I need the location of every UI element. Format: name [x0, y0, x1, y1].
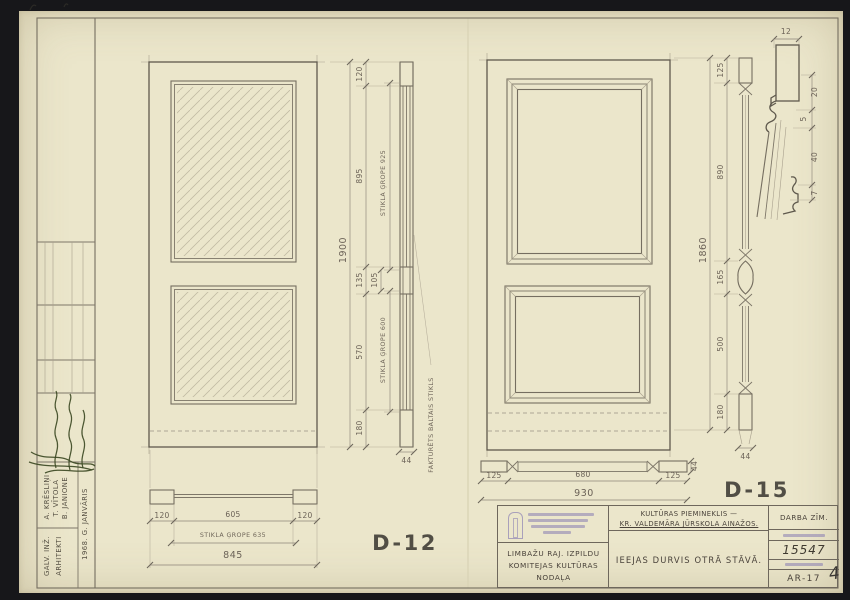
organization-line-3: NODAĻA [498, 572, 609, 584]
dim-d15-panel-width: 680 [575, 470, 590, 479]
dim-d12-stile-right: 120 [297, 511, 312, 520]
d15-vertical-section: 1860 125 890 165 500 180 44 [674, 55, 756, 461]
dim-d15-plan-thickness: 44 [690, 461, 699, 471]
moulding-detail: 12 20 5 40 7 [757, 27, 819, 220]
dim-d12-bottom-rail: 180 [355, 420, 364, 435]
credit-name-3: B. JANIONE [61, 477, 69, 519]
dim-d12-panel-height: 570 [355, 344, 364, 359]
stamp-text-line [528, 519, 588, 522]
door-label-d12: D-12 [372, 531, 438, 555]
page-mark: 4 [828, 563, 841, 584]
title-block: LIMBAŽU RAJ. IZPILDU KOMITEJAS KULTŪRAS … [497, 505, 838, 588]
glass-hatch-bottom [177, 292, 290, 397]
dim-d12-overall-height: 1900 [338, 237, 349, 263]
dim-d12-glass-height: 895 [355, 168, 364, 183]
dim-d15-overall-width: 930 [574, 488, 594, 499]
note-d12-glass-type: FAKTURĒTS BALTAIS STIKLS [426, 377, 435, 472]
dim-d12-thickness: 44 [401, 456, 411, 465]
dim-detail-d: 7 [810, 190, 819, 195]
stamp-emblem-icon [508, 512, 523, 539]
dim-d12-mid-rail: 135 [355, 272, 364, 287]
project-line-2: KR. VALDEMĀRA JŪRSKOLA AINAŽOS. [609, 519, 769, 529]
d15-elevation [479, 53, 678, 457]
d12-elevation [141, 55, 325, 454]
dim-d15-panel-top: 890 [716, 164, 725, 179]
organization-line-1: LIMBAŽU RAJ. IZPILDU [498, 548, 609, 560]
note-d12-groove-bottom: STIKLA ĢROPE 600 [380, 317, 388, 383]
dim-d12-mid-sub: 105 [370, 272, 379, 287]
dim-d12-top-rail: 120 [355, 66, 364, 81]
stamp-text-line [531, 525, 585, 528]
dim-d15-mid-rail: 165 [716, 269, 725, 284]
credit-name-2: T. VĪTOLA [51, 480, 60, 518]
dim-d15-stile-right: 125 [665, 471, 680, 480]
dim-d12-overall-width: 845 [223, 550, 243, 561]
document-type: DARBA ZĪM. [769, 506, 839, 530]
blueprint-sheet: A. KRĒSLIŅI T. VĪTOLA B. JANIONE GALV. I… [0, 0, 850, 600]
credit-name-1: A. KRĒSLIŅI [42, 474, 52, 519]
stamp-text-line [528, 513, 594, 516]
door-label-d15: D-15 [724, 478, 790, 502]
note-d12-groove-top: STIKLA ĢROPE 925 [380, 150, 388, 216]
dim-detail-b: 5 [799, 116, 808, 121]
dim-d15-thickness: 44 [740, 452, 750, 461]
approval-stamp [498, 506, 609, 543]
note-d12-groove-plan: STIKLA ĢROPE 635 [200, 532, 266, 540]
credit-role-1: GALV. INŽ. [42, 536, 51, 576]
d12-plan-section: 120 605 120 STIKLA ĢROPE 635 845 [147, 450, 320, 568]
glass-hatch-top [177, 87, 290, 256]
stile-section-left [150, 490, 174, 504]
sidebar-credits: A. KRĒSLIŅI T. VĪTOLA B. JANIONE GALV. I… [42, 474, 89, 576]
organization-line-2: KOMITEJAS KULTŪRAS [498, 560, 609, 572]
stamp-text-line [543, 531, 571, 534]
signatures [29, 391, 95, 473]
dim-d12-stile-left: 120 [154, 511, 169, 520]
d12-vertical-section: 1900 120 895 135 570 180 105 STIKLA ĢROP… [330, 59, 435, 473]
dim-detail-c: 40 [810, 152, 819, 162]
credit-date: 1968. G. JANVĀRIS [80, 488, 89, 560]
project-line-1: KULTŪRAS PIEMINEKLIS — [609, 509, 769, 519]
credit-role-2: ARHITEKTI [55, 536, 63, 576]
dim-d15-top-rail: 125 [716, 62, 725, 77]
order-number: 15547 [769, 541, 839, 560]
dim-d15-stile-left: 125 [486, 471, 501, 480]
drawing-title: IEEJAS DURVIS OTRĀ STĀVĀ. [609, 531, 769, 589]
dim-d15-bottom-rail: 180 [716, 404, 725, 419]
stamp-field [769, 530, 839, 541]
d15-plan-section: 44 125 680 125 930 [478, 458, 699, 503]
dim-detail-width: 12 [781, 27, 791, 36]
organization-name: LIMBAŽU RAJ. IZPILDU KOMITEJAS KULTŪRAS … [498, 543, 609, 589]
project-name: KULTŪRAS PIEMINEKLIS — KR. VALDEMĀRA JŪR… [609, 506, 769, 531]
dim-d12-glass-width: 605 [225, 510, 240, 519]
sheet-frame [37, 18, 838, 588]
dim-d15-panel-bottom: 500 [716, 336, 725, 351]
dim-detail-a: 20 [810, 87, 819, 97]
corner-marks [30, 4, 68, 10]
stile-section-right [293, 490, 317, 504]
dim-d15-overall-height: 1860 [698, 237, 709, 263]
